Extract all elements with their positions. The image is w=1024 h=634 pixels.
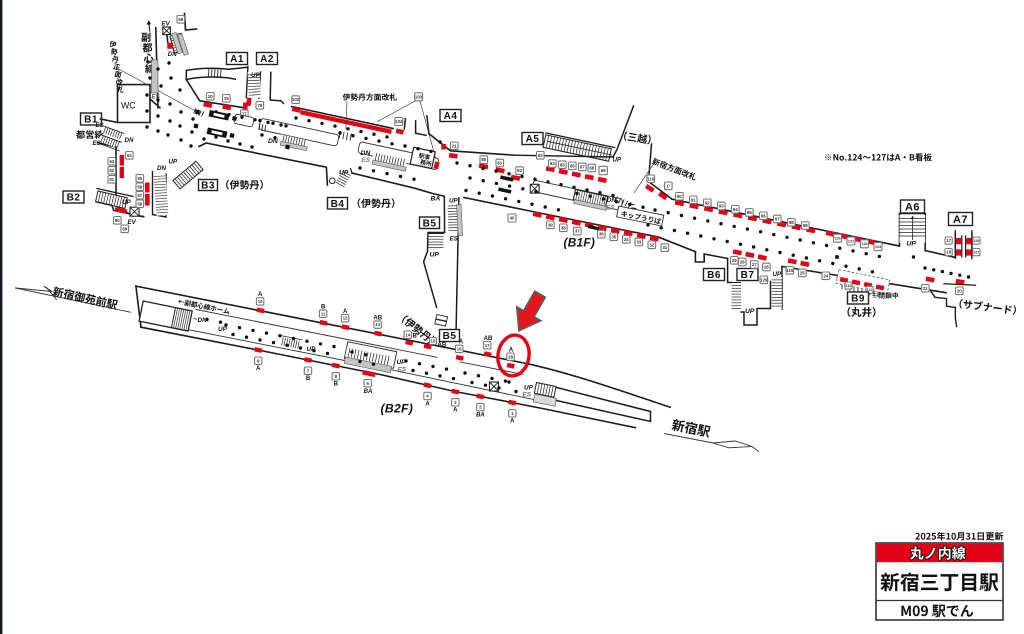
svg-text:21: 21: [923, 286, 928, 291]
svg-text:93: 93: [719, 204, 724, 209]
svg-text:80: 80: [481, 157, 486, 162]
svg-text:122: 122: [861, 242, 867, 246]
svg-text:16: 16: [457, 347, 462, 352]
svg-text:20: 20: [957, 288, 962, 293]
svg-text:BA: BA: [431, 196, 441, 203]
svg-text:59: 59: [122, 226, 127, 231]
svg-text:126: 126: [973, 239, 979, 243]
svg-text:91: 91: [691, 197, 696, 202]
svg-text:12: 12: [343, 316, 348, 321]
svg-text:65: 65: [178, 17, 183, 22]
svg-text:56: 56: [137, 184, 142, 189]
svg-text:B: B: [306, 376, 311, 382]
svg-text:10: 10: [258, 299, 263, 304]
svg-text:96: 96: [761, 213, 766, 218]
svg-text:116: 116: [647, 176, 655, 181]
svg-text:UP: UP: [430, 252, 440, 259]
svg-text:57: 57: [137, 193, 142, 198]
svg-text:31: 31: [662, 245, 667, 250]
svg-text:UP: UP: [122, 199, 131, 206]
svg-text:38: 38: [561, 225, 566, 230]
svg-text:110: 110: [846, 284, 852, 288]
svg-text:B9: B9: [851, 294, 865, 305]
svg-text:ES: ES: [362, 157, 371, 164]
svg-text:AB: AB: [438, 343, 447, 349]
svg-text:(B1F): (B1F): [564, 236, 596, 250]
svg-text:(B2F): (B2F): [381, 402, 414, 416]
svg-text:DN: DN: [268, 138, 279, 145]
svg-text:79: 79: [257, 103, 262, 108]
svg-text:121: 121: [848, 239, 854, 243]
svg-text:B3: B3: [201, 181, 215, 192]
svg-text:127: 127: [973, 250, 979, 254]
svg-text:B5: B5: [443, 331, 457, 342]
svg-text:26: 26: [740, 260, 745, 265]
svg-text:11: 11: [321, 311, 326, 316]
svg-text:B6: B6: [707, 270, 721, 281]
svg-text:60: 60: [115, 218, 120, 223]
svg-text:A5: A5: [526, 134, 540, 145]
svg-text:B7: B7: [741, 270, 755, 281]
svg-text:120: 120: [834, 237, 840, 241]
svg-text:DN: DN: [125, 137, 134, 144]
svg-text:102: 102: [292, 97, 300, 102]
svg-text:B2: B2: [67, 193, 81, 204]
svg-text:UP: UP: [169, 159, 178, 166]
svg-text:69: 69: [601, 168, 606, 173]
svg-text:UP: UP: [773, 271, 782, 278]
svg-text:A: A: [425, 401, 430, 407]
svg-text:DN: DN: [361, 150, 372, 157]
svg-text:99: 99: [803, 223, 808, 228]
svg-text:37: 37: [575, 229, 580, 234]
svg-text:33: 33: [636, 240, 641, 245]
svg-text:UP: UP: [907, 241, 917, 248]
svg-text:UP: UP: [218, 326, 228, 333]
svg-text:92: 92: [705, 200, 710, 205]
svg-text:27: 27: [752, 262, 757, 267]
svg-text:25: 25: [732, 258, 737, 263]
svg-text:35: 35: [611, 234, 616, 239]
svg-text:58: 58: [137, 201, 142, 206]
svg-text:UP: UP: [524, 385, 534, 392]
svg-text:14: 14: [405, 332, 410, 337]
svg-text:BA: BA: [364, 389, 373, 395]
svg-text:A1: A1: [230, 54, 244, 65]
svg-text:BA: BA: [476, 412, 485, 418]
svg-text:104: 104: [395, 119, 403, 124]
svg-text:ES: ES: [606, 205, 615, 212]
svg-text:17: 17: [485, 343, 490, 348]
svg-text:ES: ES: [398, 367, 407, 374]
svg-text:94: 94: [733, 207, 738, 212]
svg-text:90: 90: [677, 194, 682, 199]
svg-text:UP: UP: [613, 157, 622, 164]
svg-text:ES: ES: [96, 122, 105, 129]
svg-text:98: 98: [789, 220, 794, 225]
svg-text:67: 67: [580, 165, 585, 170]
svg-text:61: 61: [109, 177, 114, 182]
svg-text:81: 81: [497, 161, 502, 166]
svg-text:21: 21: [452, 143, 457, 148]
svg-text:DN: DN: [607, 197, 617, 204]
svg-text:UP: UP: [251, 72, 260, 79]
svg-text:20: 20: [208, 94, 213, 99]
svg-text:UP: UP: [339, 170, 349, 177]
svg-text:B4: B4: [331, 199, 345, 210]
svg-text:95: 95: [747, 210, 752, 215]
svg-text:13: 13: [375, 322, 380, 327]
svg-text:UP: UP: [745, 308, 755, 315]
svg-text:A: A: [256, 366, 261, 372]
svg-text:25: 25: [800, 271, 805, 276]
svg-text:EV: EV: [128, 219, 137, 226]
svg-text:A4: A4: [444, 111, 458, 122]
svg-text:40: 40: [510, 216, 515, 221]
svg-text:123: 123: [875, 245, 881, 249]
svg-text:B: B: [334, 382, 339, 388]
svg-text:66: 66: [570, 163, 575, 168]
svg-text:68: 68: [589, 166, 594, 171]
svg-text:A7: A7: [953, 214, 968, 226]
svg-text:28: 28: [764, 265, 769, 270]
svg-text:24: 24: [823, 273, 828, 278]
svg-text:ES: ES: [523, 392, 532, 399]
svg-text:18: 18: [946, 250, 951, 255]
svg-text:ES: ES: [450, 236, 459, 243]
svg-text:97: 97: [775, 217, 780, 222]
svg-text:55: 55: [137, 176, 142, 181]
svg-text:32: 32: [649, 242, 654, 247]
svg-text:82: 82: [517, 168, 522, 173]
svg-text:17: 17: [946, 238, 951, 243]
svg-text:A6: A6: [905, 202, 920, 214]
svg-text:63: 63: [109, 159, 114, 164]
svg-text:B5: B5: [423, 218, 437, 229]
svg-text:115: 115: [786, 268, 794, 273]
svg-text:34: 34: [624, 237, 629, 242]
svg-text:DN: DN: [157, 165, 166, 172]
svg-text:36: 36: [599, 232, 604, 237]
svg-text:64: 64: [127, 153, 132, 158]
svg-text:A: A: [453, 408, 458, 414]
svg-text:62: 62: [109, 168, 114, 173]
svg-text:103: 103: [415, 94, 423, 99]
svg-text:A: A: [459, 340, 464, 346]
svg-text:A2: A2: [260, 54, 274, 65]
svg-text:39: 39: [548, 222, 553, 227]
svg-text:A: A: [510, 419, 515, 425]
svg-text:B: B: [413, 334, 418, 340]
svg-text:18: 18: [508, 354, 513, 359]
svg-text:DN: DN: [168, 51, 177, 58]
svg-text:65: 65: [560, 162, 565, 167]
svg-text:129: 129: [760, 277, 768, 282]
svg-text:63: 63: [538, 153, 543, 158]
svg-text:19: 19: [224, 96, 229, 101]
svg-text:WC: WC: [121, 101, 136, 111]
svg-text:ES: ES: [93, 140, 102, 147]
svg-text:64: 64: [550, 161, 555, 166]
svg-text:15: 15: [431, 339, 436, 344]
